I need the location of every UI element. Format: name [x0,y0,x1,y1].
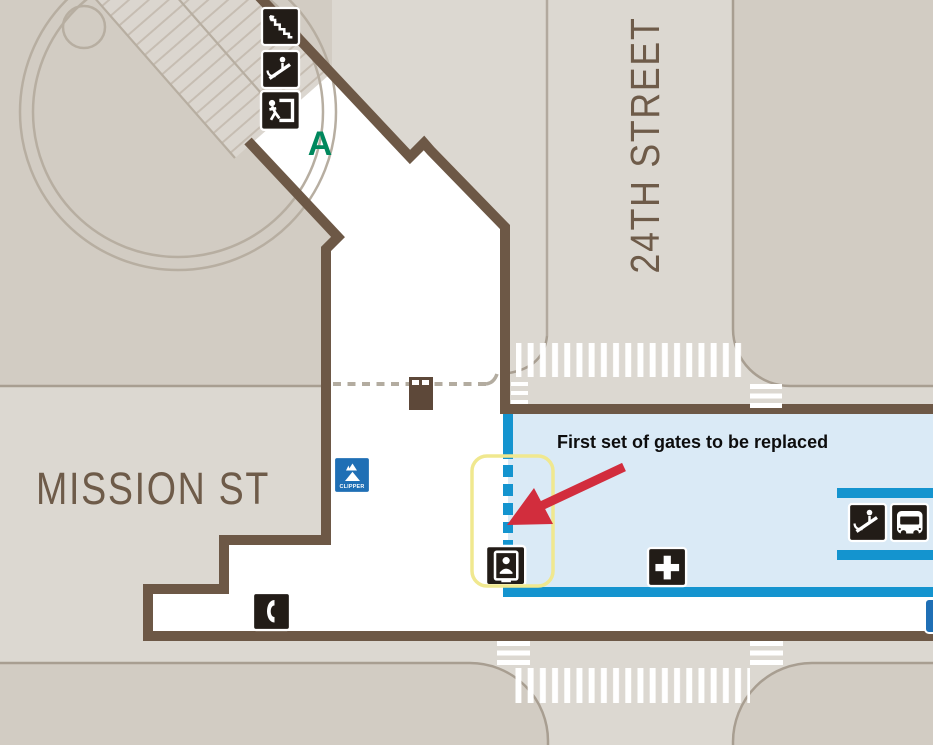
escalator-icon-paid-area [849,504,886,541]
stop-bars-northwest [511,382,528,404]
clipper-icon-label: CLIPPER [339,484,364,490]
stop-bars-northeast [750,384,782,408]
city-block-northeast [733,0,933,386]
clipped-blue-icon-right-edge [925,599,933,633]
stop-bars-southeast [750,641,783,665]
first-aid-icon [648,548,686,586]
city-block-southwest [0,663,548,745]
exit-icon [261,91,300,130]
escalator-icon [262,51,299,88]
bus-icon [891,504,928,541]
telephone-icon [253,593,290,630]
stop-bars-southwest [497,641,530,665]
elevator-icon [486,546,525,585]
street-label-mission: MISSION ST [36,463,270,514]
station-map: CLIPPER MISSION ST 24TH STREET A First s… [0,0,933,745]
stairs-icon [262,8,299,45]
annotation-text: First set of gates to be replaced [557,432,828,452]
street-label-24th: 24TH STREET [622,17,668,274]
entrance-letter-label: A [308,125,333,163]
station-map-svg: CLIPPER MISSION ST 24TH STREET A First s… [0,0,933,745]
agent-booth [409,377,433,410]
clipper-icon: CLIPPER [334,457,370,493]
